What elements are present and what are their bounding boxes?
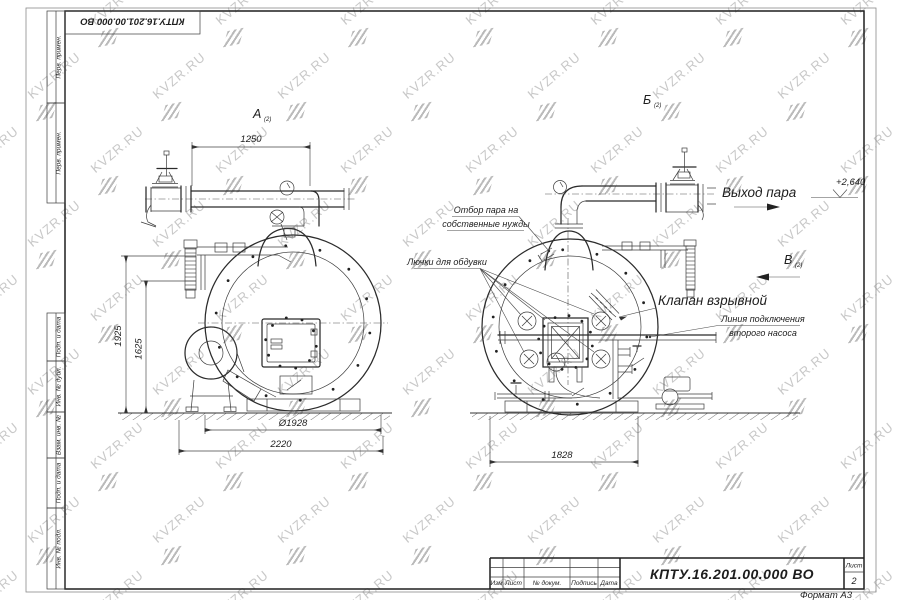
view-c-sub: (2) bbox=[795, 263, 802, 269]
ann-steam-tap-1: Отбор пара на bbox=[454, 205, 519, 215]
steam-pipe-left bbox=[141, 151, 356, 227]
level-fittings-left bbox=[184, 240, 291, 298]
right-view: Б (2) bbox=[406, 93, 866, 467]
ann-pump-line-1: Линия подключения bbox=[720, 314, 805, 324]
steam-dome-left bbox=[258, 210, 316, 266]
strip-label: Инв. № дубл. bbox=[55, 366, 63, 406]
left-dimensions: 1250 1925 1625 Ø1928 2220 bbox=[113, 134, 383, 455]
view-b-sub: (2) bbox=[654, 103, 661, 109]
col-ndokum: № докум. bbox=[533, 579, 562, 587]
left-strip-top: Перв. примен. Перв. примен. bbox=[47, 11, 65, 203]
boiler-front bbox=[198, 235, 388, 411]
hatch-circle bbox=[592, 350, 610, 368]
strip-label: Перв. примен. bbox=[56, 131, 63, 174]
dim-2220: 2220 bbox=[269, 439, 292, 450]
left-strip-bottom: Подп. и дата Инв. № дубл. Взам. инв. № П… bbox=[47, 313, 65, 589]
stop-valve-left bbox=[141, 151, 191, 227]
pump-station bbox=[498, 331, 716, 409]
dim-1625: 1625 bbox=[134, 338, 145, 360]
stamp-top-text: КПТУ.16.201.00.000 ВО bbox=[80, 16, 185, 27]
stamp-top-box: КПТУ.16.201.00.000 ВО bbox=[65, 11, 200, 34]
drawing-canvas: Перв. примен. Перв. примен. Подп. и дата… bbox=[0, 0, 900, 600]
view-a-label: А bbox=[252, 107, 261, 121]
dim-1250: 1250 bbox=[240, 134, 262, 145]
strip-label: Подп. и дата bbox=[55, 316, 63, 357]
drawing-page: KVZR.RUKVZR.RUKVZR.RUKVZR.RUKVZR.RUKVZR.… bbox=[0, 0, 900, 600]
right-dimensions: 1828 bbox=[490, 416, 638, 467]
dim-d1928: Ø1928 bbox=[278, 418, 308, 429]
view-a-sub: (2) bbox=[264, 117, 271, 123]
col-izm: Изм bbox=[490, 580, 503, 587]
view-c-label: В bbox=[784, 253, 792, 267]
bolt-circle bbox=[492, 248, 648, 405]
stop-valve-right bbox=[656, 148, 716, 220]
sheet-number: 2 bbox=[850, 576, 856, 586]
doc-number: КПТУ.16.201.00.000 ВО bbox=[650, 566, 814, 582]
ann-hatches: Лючки для обдувки bbox=[406, 257, 487, 267]
col-list: Лист bbox=[504, 580, 522, 587]
col-data: Дата bbox=[599, 580, 618, 587]
burner-door bbox=[262, 317, 320, 395]
left-view: А (2) bbox=[113, 107, 392, 455]
ann-steam-tap-2: собственные нужды bbox=[442, 219, 530, 229]
sheet-label: Лист bbox=[845, 563, 863, 570]
title-block: Изм Лист № докум. Подпись Дата КПТУ.16.2… bbox=[490, 558, 864, 600]
strip-label: Инв. № подл. bbox=[55, 528, 63, 569]
ann-steam-out: Выход пара bbox=[722, 185, 797, 200]
strip-label: Перв. примен. bbox=[56, 35, 63, 78]
col-podpis: Подпись bbox=[571, 579, 597, 587]
hatch-circle bbox=[520, 350, 538, 368]
dim-1925: 1925 bbox=[113, 325, 124, 347]
view-b-label: Б bbox=[643, 93, 651, 107]
right-annotations: Отбор пара на собственные нужды Лючки дл… bbox=[406, 177, 866, 352]
format-label: Формат А3 bbox=[800, 590, 853, 600]
ann-level: +2,640 bbox=[836, 177, 866, 188]
dim-1828: 1828 bbox=[551, 450, 573, 461]
ann-explosion-valve: Клапан взрывной bbox=[658, 293, 767, 308]
manhole bbox=[537, 314, 593, 382]
strip-label: Взам. инв. № bbox=[56, 415, 63, 455]
strip-label: Подп. и дата bbox=[55, 462, 63, 503]
ann-pump-line-2: второго насоса bbox=[729, 328, 797, 338]
